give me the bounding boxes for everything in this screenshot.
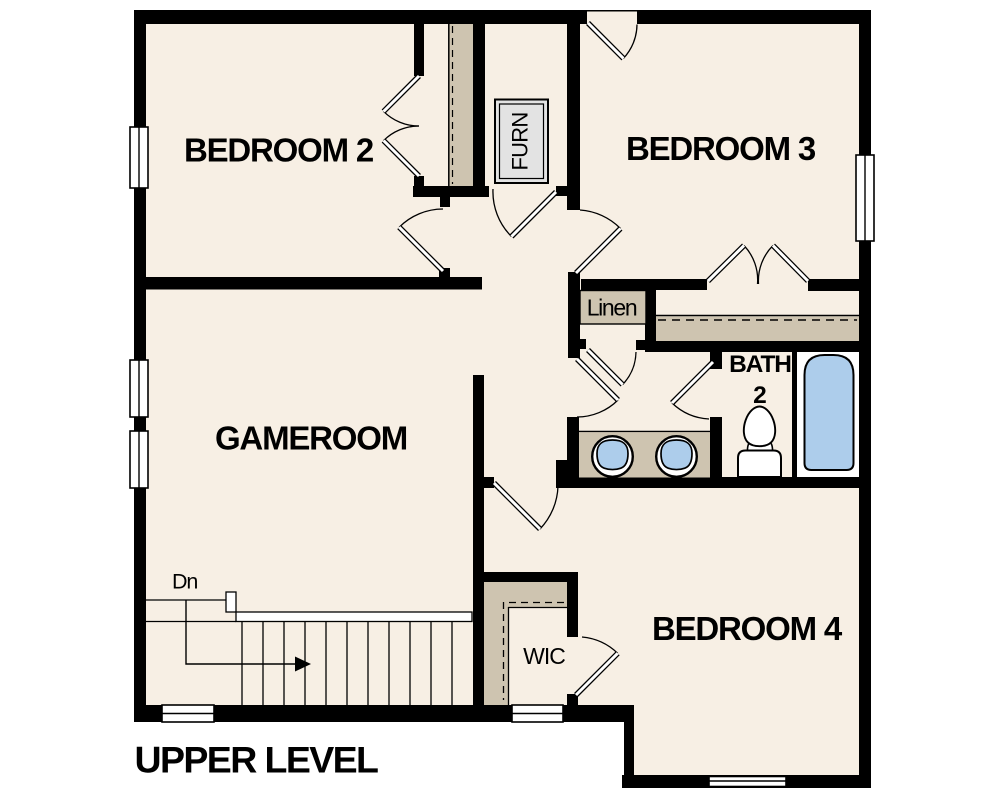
svg-text:GAMEROOM: GAMEROOM <box>215 420 407 457</box>
svg-text:BATH: BATH <box>729 351 791 378</box>
svg-text:Linen: Linen <box>587 295 637 321</box>
svg-text:2: 2 <box>753 382 767 409</box>
svg-text:UPPER LEVEL: UPPER LEVEL <box>135 739 379 781</box>
svg-text:BEDROOM 2: BEDROOM 2 <box>184 132 374 169</box>
svg-text:WIC: WIC <box>523 643 565 669</box>
svg-text:Dn: Dn <box>172 570 197 594</box>
svg-text:BEDROOM 3: BEDROOM 3 <box>626 130 816 167</box>
svg-text:BEDROOM 4: BEDROOM 4 <box>652 610 843 647</box>
svg-text:FURN: FURN <box>508 113 533 171</box>
